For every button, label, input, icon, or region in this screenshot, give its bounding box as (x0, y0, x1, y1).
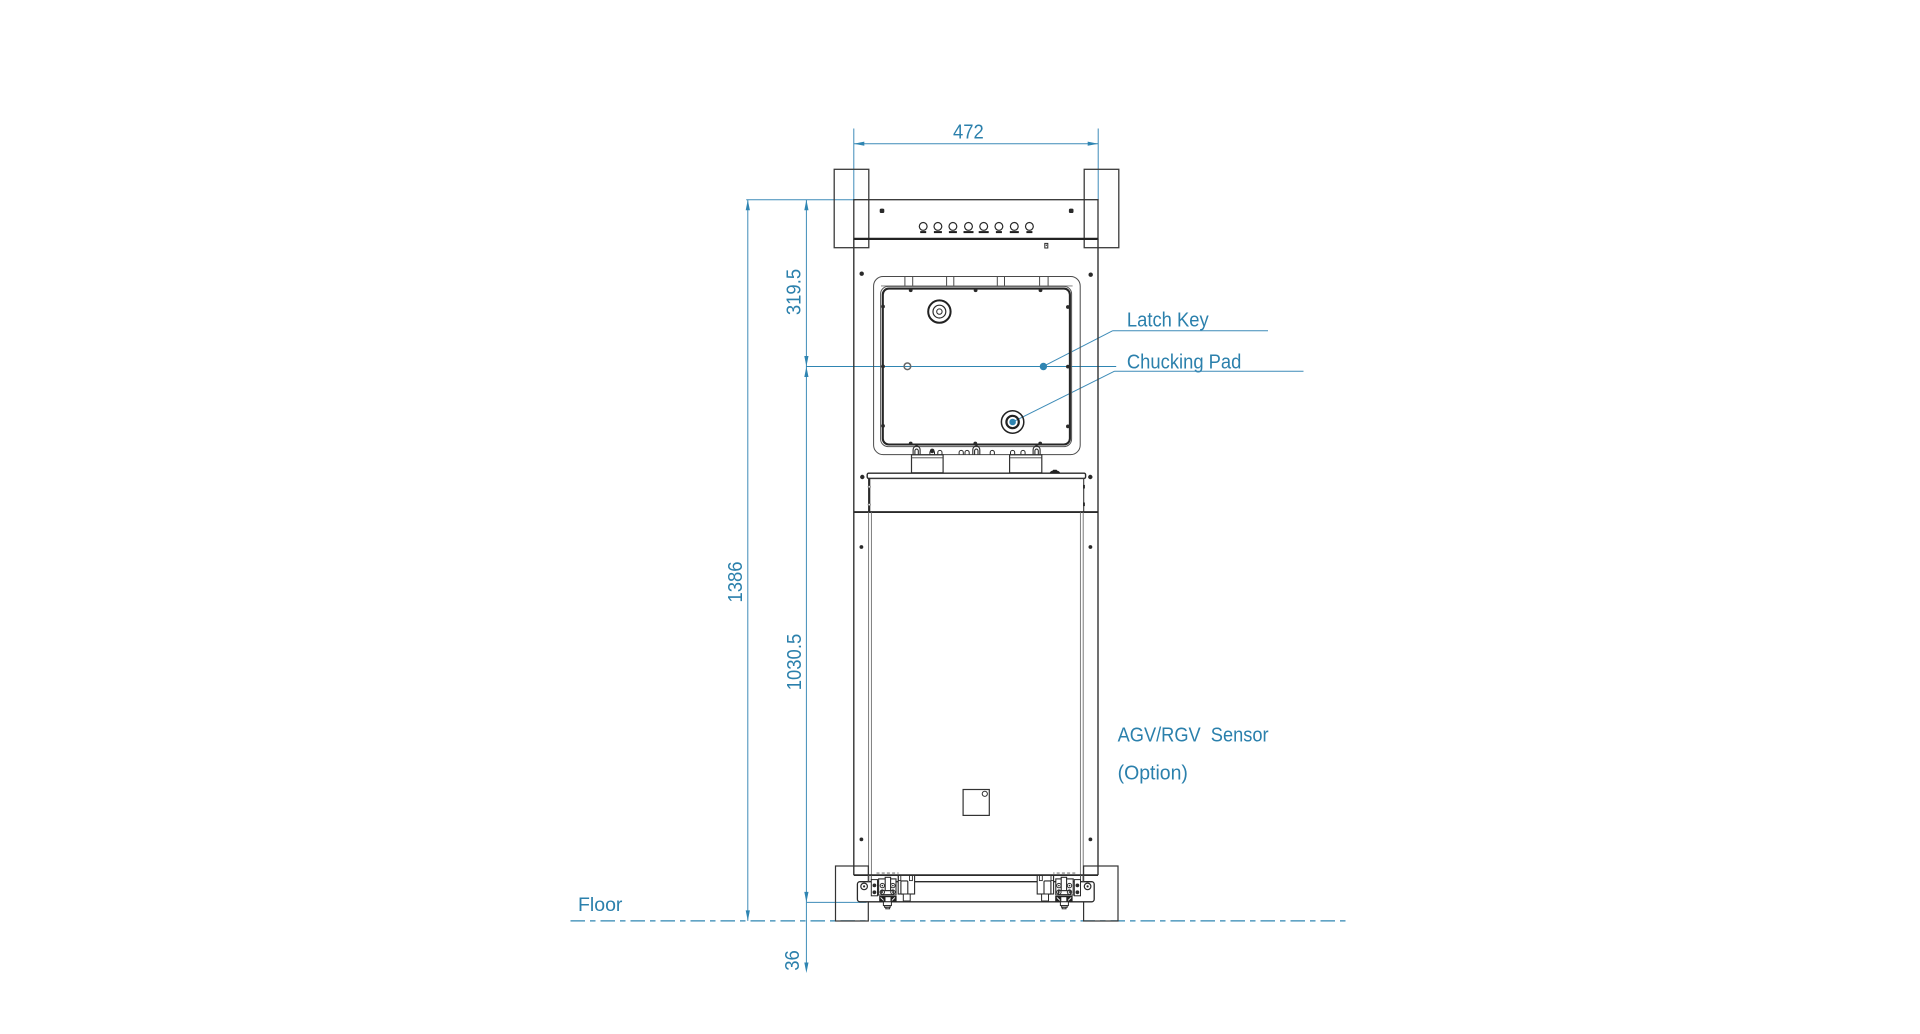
svg-text:1386: 1386 (724, 561, 747, 602)
svg-text:472: 472 (953, 121, 984, 144)
svg-text:319.5: 319.5 (783, 269, 806, 315)
svg-text:1030.5: 1030.5 (783, 634, 806, 691)
svg-text:36: 36 (781, 950, 804, 971)
svg-text:Floor: Floor (578, 894, 623, 916)
svg-text:Chucking Pad: Chucking Pad (1127, 352, 1241, 374)
svg-text:Latch Key: Latch Key (1127, 310, 1209, 332)
svg-text:AGV/RGV Sensor: AGV/RGV Sensor (1118, 723, 1269, 746)
svg-text:(Option): (Option) (1118, 762, 1188, 785)
